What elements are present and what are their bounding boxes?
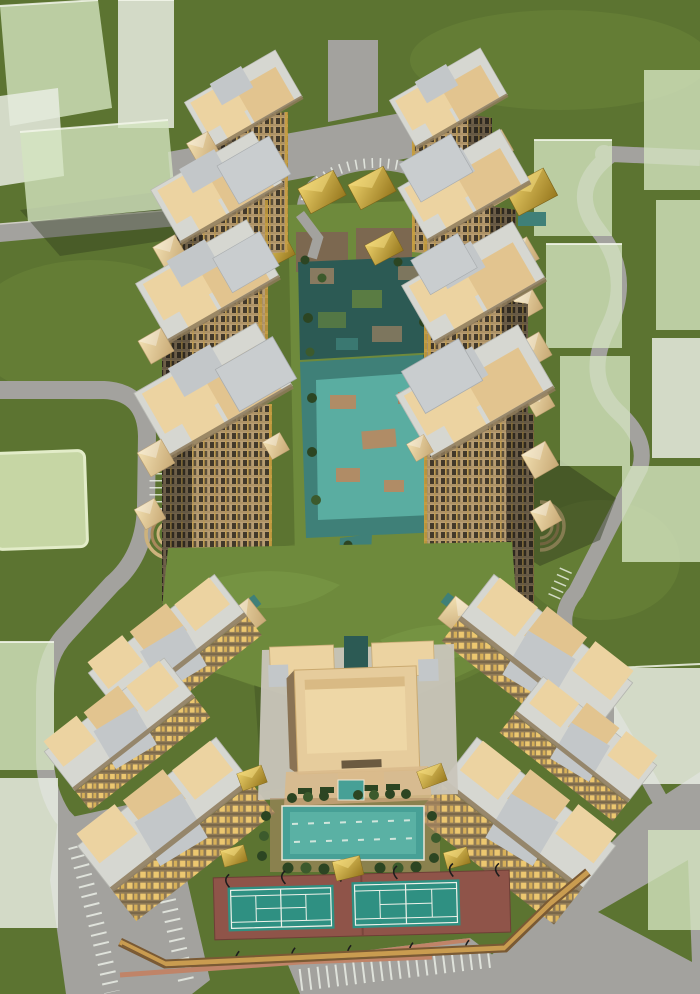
tennis-court-west [227, 885, 334, 932]
aerial-render: Residential complex — aerial architectur… [0, 0, 700, 994]
massing-block [20, 120, 176, 222]
massing-block [644, 70, 700, 190]
massing-block [560, 356, 630, 466]
massing-block [118, 0, 174, 128]
entry-plaza-stem [328, 40, 378, 122]
gold-corner [285, 112, 288, 253]
sports-field-pad [0, 450, 88, 549]
massing-block [648, 830, 700, 930]
massing-block [622, 466, 700, 562]
render-stage: Residential complex — aerial architectur… [0, 0, 700, 994]
pool-shallow [290, 812, 416, 854]
massing-block [546, 244, 622, 348]
massing-block [656, 200, 700, 330]
massing-block [652, 338, 700, 458]
tennis-court-east [351, 879, 460, 928]
massing-block [0, 778, 58, 928]
